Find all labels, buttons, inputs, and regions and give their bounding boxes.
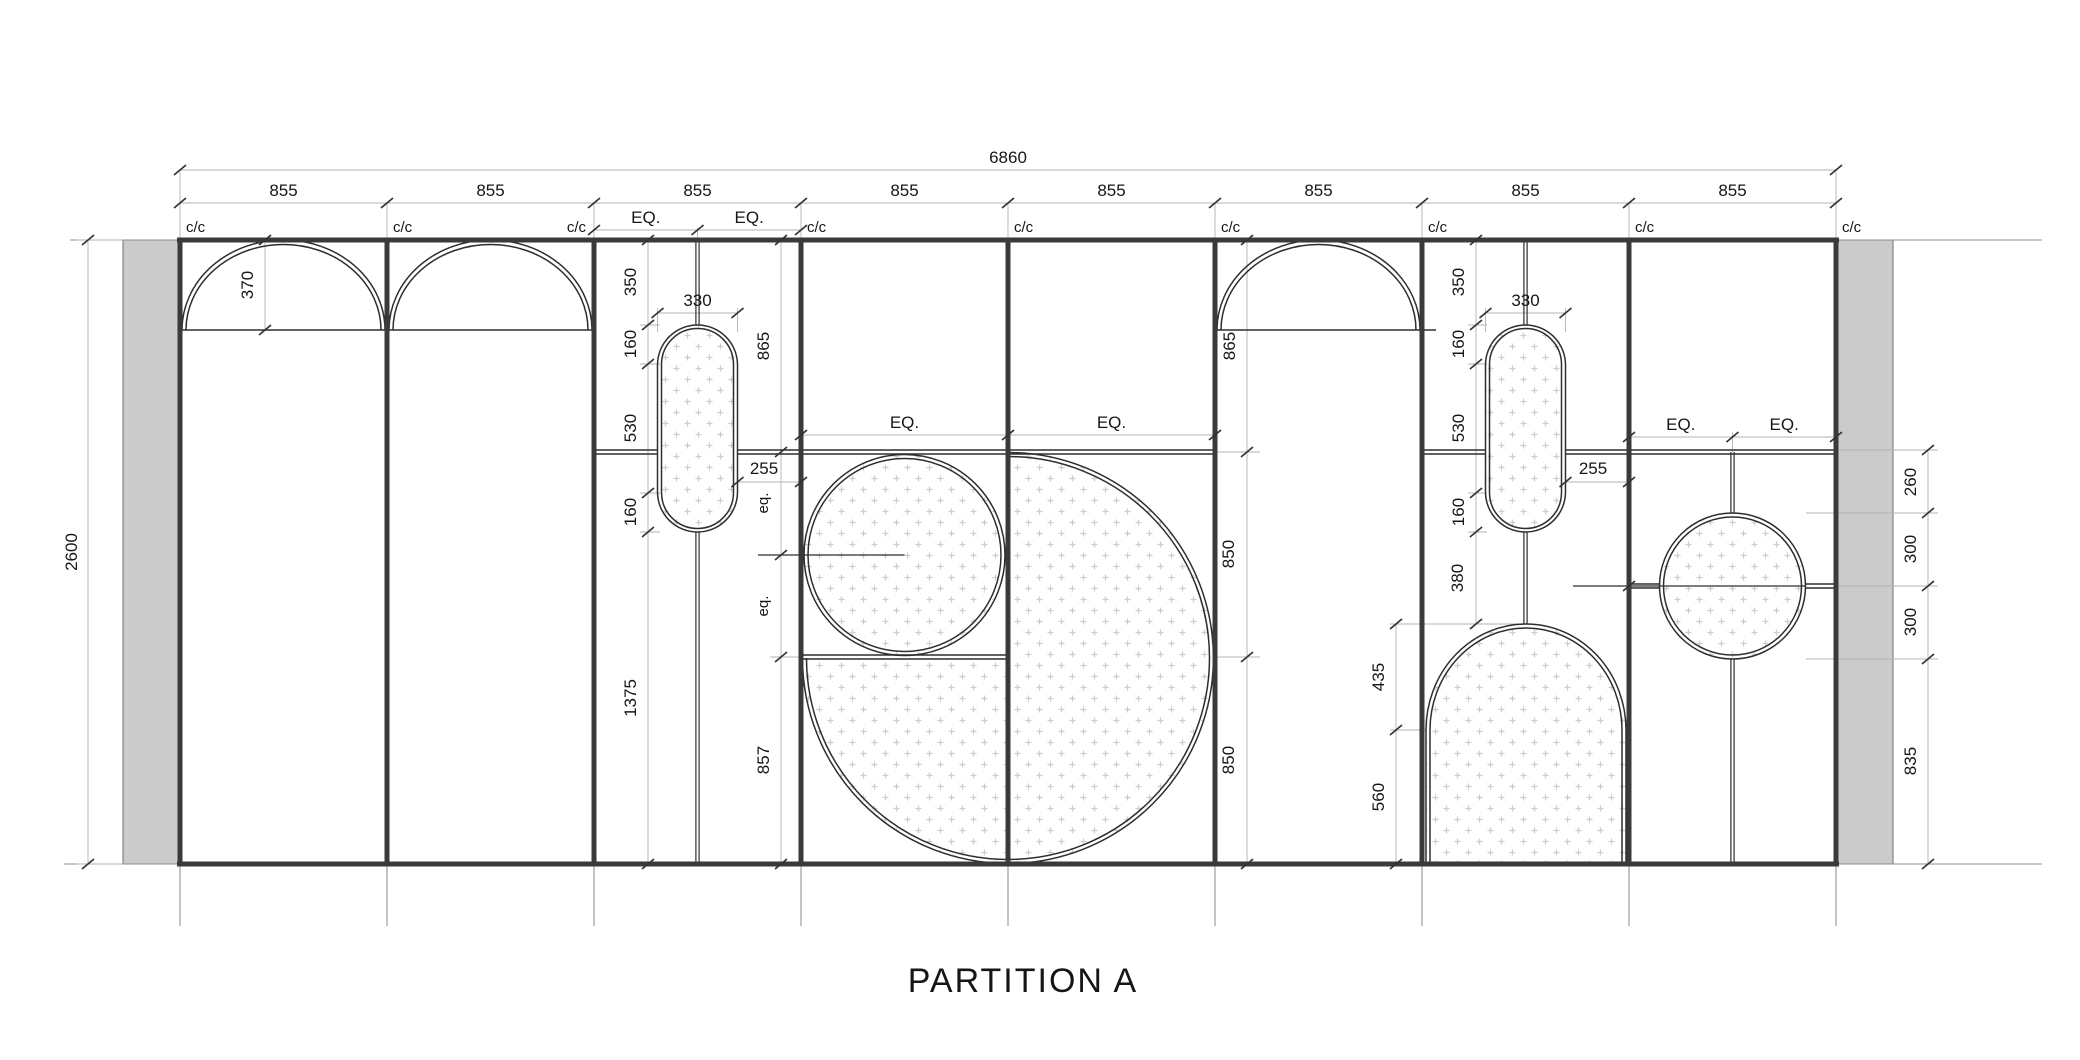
label-cc-2: c/c [393,219,413,236]
dim-eq-panel5: EQ. [1097,413,1126,432]
dim-radius-upper: 850 [1219,540,1238,568]
label-cc-5: c/c [1014,219,1034,236]
left-wall-strip [123,240,180,864]
dim-cap-end-bot-p7: 160 [1449,498,1468,526]
dim-ring-radius-upper: 300 [1901,535,1920,563]
dim-cap-mid-p3: 530 [621,414,640,442]
label-cc-3: c/c [567,219,587,236]
right-wall-strip [1836,240,1893,864]
dim-cap-end-top-p7: 160 [1449,330,1468,358]
arch-panel-1-inner [186,245,381,331]
dim-bay-3: 855 [683,181,711,200]
label-cc-8: c/c [1635,219,1655,236]
big-circle-quarter [803,658,1009,864]
drawing-sheet: 6860 855 855 855 855 855 855 855 855 c/c… [0,0,2080,1060]
dim-quarter-height: 857 [754,746,773,774]
dim-head-height-p6: 865 [1220,332,1239,360]
dim-bay-5: 855 [1097,181,1125,200]
dim-cap-offset-p3: 350 [621,268,640,296]
dim-eq-panel3-left: EQ. [631,208,660,227]
dim-head-height-p4: 865 [754,332,773,360]
arch-panel-6-inner [1221,245,1416,331]
dim-ring-below: 835 [1901,747,1920,775]
dim-below-capsule: 1375 [621,679,640,717]
capsule-panel-3 [658,325,738,532]
dim-capsule-width-p7: 330 [1511,291,1539,310]
big-circle-right-half [1008,453,1213,864]
label-cc-4: c/c [807,219,827,236]
dim-eq-panel8-right: EQ. [1770,415,1799,434]
dim-dome-rise: 435 [1369,663,1388,691]
dim-ring-radius-lower: 300 [1901,608,1920,636]
dim-cap-mid-p7: 530 [1449,414,1468,442]
dim-eq-panel8-left: EQ. [1666,415,1695,434]
dim-bay-1: 855 [269,181,297,200]
dim-ring-gap: 260 [1901,468,1920,496]
dim-side-gap-p7: 255 [1579,459,1607,478]
label-cc-7: c/c [1428,219,1448,236]
dim-dome-body: 560 [1369,783,1388,811]
dim-eq-panel4: EQ. [890,413,919,432]
dim-wall-height: 2600 [62,533,81,571]
dim-capsule-width-p3: 330 [683,291,711,310]
dim-bay-6: 855 [1304,181,1332,200]
dim-bay-8: 855 [1718,181,1746,200]
capsule-panel-7 [1486,325,1566,532]
dim-bay-4: 855 [890,181,918,200]
arch-panel-2-inner [393,245,588,331]
dim-bay-7: 855 [1511,181,1539,200]
dim-overall-width: 6860 [989,148,1027,167]
dim-radius-lower: 850 [1219,746,1238,774]
dim-arch-rise: 370 [238,271,257,299]
drawing-title: PARTITION A [908,962,1138,1000]
dim-cap-offset-p7: 350 [1449,268,1468,296]
dim-side-gap-p3: 255 [750,459,778,478]
dim-dome-gap: 380 [1448,564,1467,592]
arch-panel-2-outer [389,240,592,330]
dim-eq-small-lower: eq. [755,596,772,617]
panel-infill-shapes [658,325,1806,864]
dim-bay-2: 855 [476,181,504,200]
partition-a-elevation-drawing: 6860 855 855 855 855 855 855 855 855 c/c… [0,0,2080,1060]
dim-eq-small-upper: eq. [755,493,772,514]
arch-panel-1-outer [182,240,385,330]
dim-eq-panel3-right: EQ. [735,208,764,227]
label-cc-1: c/c [186,219,206,236]
label-cc-9: c/c [1842,219,1862,236]
dim-cap-end-top-p3: 160 [621,330,640,358]
label-cc-6: c/c [1221,219,1241,236]
dim-cap-end-bot-p3: 160 [621,498,640,526]
